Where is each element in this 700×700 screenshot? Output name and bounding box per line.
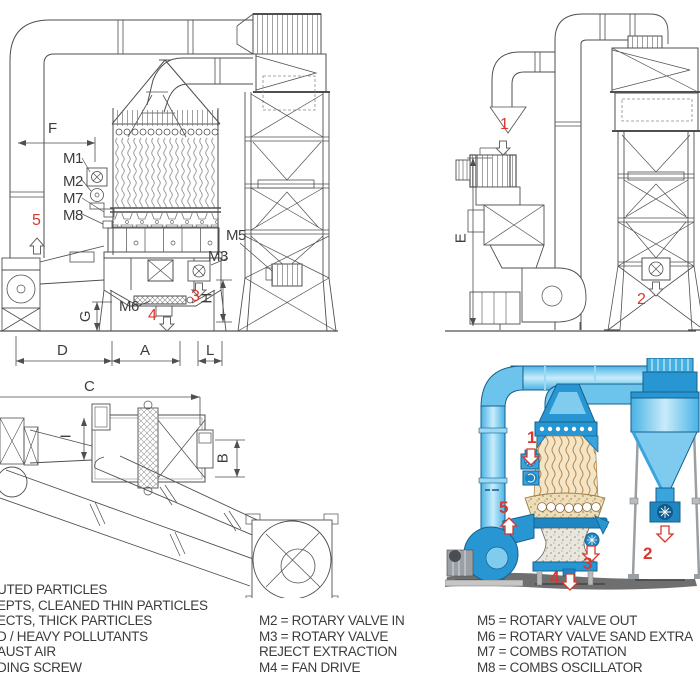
legend-line: REJECT EXTRACTION xyxy=(259,644,404,660)
legend-line: UTED PARTICLES xyxy=(0,582,208,598)
dim-label-c: C xyxy=(84,379,94,394)
dim-label-i: I xyxy=(58,435,73,439)
motor-label-m3: M3 xyxy=(208,249,228,264)
flow-number-1-illustration: 1 xyxy=(527,430,536,445)
legend-line: M8 = COMBS OSCILLATOR xyxy=(477,660,693,676)
legend-line: D / HEAVY POLLUTANTS xyxy=(0,629,208,645)
dim-label-b: B xyxy=(215,454,230,464)
motor-label-m8: M8 xyxy=(63,208,83,223)
legend-line: AUST AIR xyxy=(0,644,208,660)
flow-number-4-illustration: 4 xyxy=(550,570,559,585)
legend-line: ECTS, THICK PARTICLES xyxy=(0,613,208,629)
flow-number-3-illustration: 3 xyxy=(583,556,592,571)
legend-line: EPTS, CLEANED THIN PARTICLES xyxy=(0,598,208,614)
legend-line: M4 = FAN DRIVE xyxy=(259,660,404,676)
legend-line: M5 = ROTARY VALVE OUT xyxy=(477,613,693,629)
dim-label-g: G xyxy=(78,311,93,322)
legend-line: M7 = COMBS ROTATION xyxy=(477,644,693,660)
motor-label-m6: M6 xyxy=(119,299,139,314)
legend-line: DING SCREW xyxy=(0,660,208,676)
motor-label-m1: M1 xyxy=(63,151,83,166)
dim-label-d: D xyxy=(57,343,67,358)
dim-label-h: H xyxy=(200,293,215,303)
legend-column-m2-m4: M2 = ROTARY VALVE IN M3 = ROTARY VALVE R… xyxy=(259,613,404,675)
front-elevation-drawing xyxy=(0,0,345,366)
dim-label-f: F xyxy=(48,121,57,136)
legend-line: M3 = ROTARY VALVE xyxy=(259,629,404,645)
motor-label-m5: M5 xyxy=(226,228,246,243)
dim-label-a: A xyxy=(140,343,150,358)
legend-line: M6 = ROTARY VALVE SAND EXTRA xyxy=(477,629,693,645)
flow-number-5-front: 5 xyxy=(32,213,40,228)
dim-label-l: L xyxy=(206,343,214,358)
motor-label-m7: M7 xyxy=(63,191,83,206)
technical-drawing-page: { "colors": { "accent_red": "#d8382d", "… xyxy=(0,0,700,700)
flow-number-1-side: 1 xyxy=(500,117,508,132)
flow-number-5-illustration: 5 xyxy=(499,500,508,515)
flow-number-4-front: 4 xyxy=(148,308,156,323)
dim-label-e: E xyxy=(453,234,468,244)
color-illustration xyxy=(445,358,700,603)
legend-line: M2 = ROTARY VALVE IN xyxy=(259,613,404,629)
side-elevation-drawing xyxy=(440,0,700,340)
flow-number-2-illustration: 2 xyxy=(643,546,652,561)
legend-column-m5-m8: M5 = ROTARY VALVE OUT M6 = ROTARY VALVE … xyxy=(477,613,693,675)
motor-label-m2: M2 xyxy=(63,174,83,189)
legend-column-particles: UTED PARTICLES EPTS, CLEANED THIN PARTIC… xyxy=(0,582,208,676)
flow-number-2-side: 2 xyxy=(637,292,645,307)
